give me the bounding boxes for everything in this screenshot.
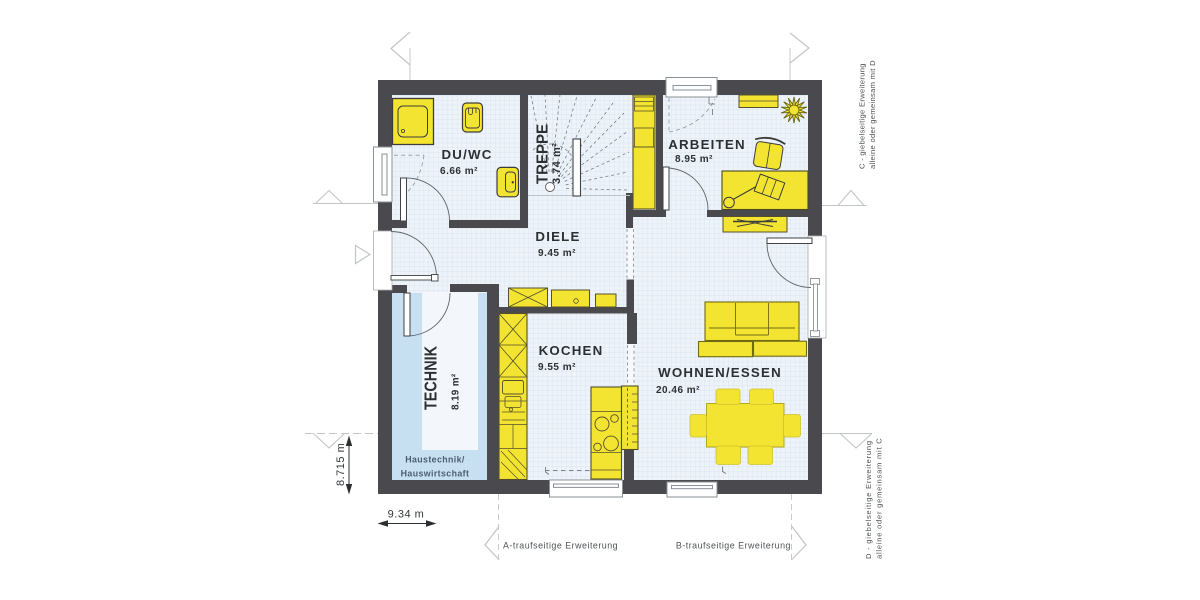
svg-text:9.55 m²: 9.55 m² (538, 362, 576, 373)
svg-text:6.66 m²: 6.66 m² (440, 166, 478, 177)
svg-text:8.19 m²: 8.19 m² (451, 373, 462, 410)
svg-text:20.46 m²: 20.46 m² (656, 385, 700, 396)
svg-text:3.74 m²: 3.74 m² (551, 143, 563, 184)
svg-text:9.45 m²: 9.45 m² (538, 248, 576, 259)
svg-text:ARBEITEN: ARBEITEN (668, 137, 746, 152)
svg-text:DIELE: DIELE (535, 229, 580, 244)
svg-text:8.95 m²: 8.95 m² (675, 154, 713, 165)
svg-text:8.715 m: 8.715 m (335, 443, 347, 486)
svg-text:D - giebelseitige Erweiterung: D - giebelseitige Erweiterung (864, 440, 873, 559)
svg-text:A-traufseitige Erweiterung: A-traufseitige Erweiterung (503, 541, 618, 551)
svg-text:Hauswirtschaft: Hauswirtschaft (401, 469, 470, 479)
svg-text:WOHNEN/ESSEN: WOHNEN/ESSEN (658, 365, 782, 380)
svg-text:TECHNIK: TECHNIK (421, 346, 441, 410)
svg-text:B-traufseitige Erweiterung: B-traufseitige Erweiterung (676, 541, 791, 551)
svg-text:alleine oder gemeinsam mit D: alleine oder gemeinsam mit D (868, 60, 877, 169)
svg-text:DU/WC: DU/WC (441, 147, 492, 162)
svg-text:C - giebelseitige Erweiterung: C - giebelseitige Erweiterung (858, 63, 867, 169)
svg-text:Haustechnik/: Haustechnik/ (405, 455, 465, 465)
svg-text:alleine oder gemeinsam mit C: alleine oder gemeinsam mit C (875, 438, 884, 559)
svg-text:9.34 m: 9.34 m (388, 509, 425, 521)
svg-text:TREPPE: TREPPE (535, 124, 552, 184)
svg-text:KOCHEN: KOCHEN (539, 343, 604, 358)
